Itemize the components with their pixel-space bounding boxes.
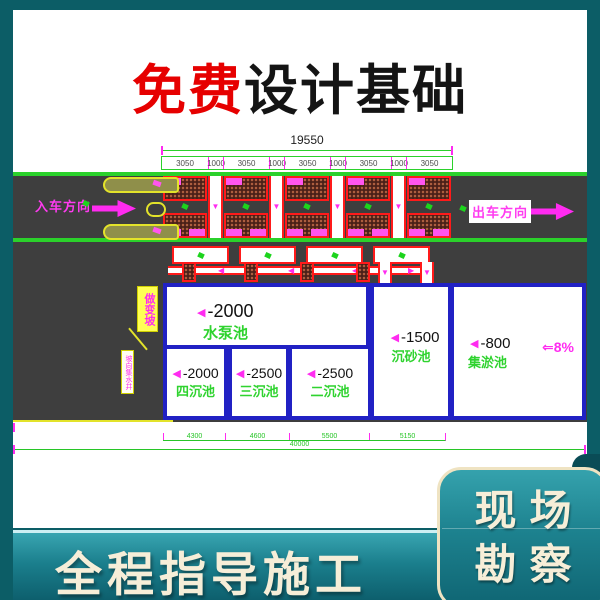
hatched-pier <box>300 262 314 282</box>
flow-down-icon: ▼ <box>395 203 403 211</box>
yellow-baseline <box>13 420 173 422</box>
collection-bay <box>172 246 229 264</box>
traffic-island <box>103 224 179 240</box>
magenta-marker <box>409 178 425 185</box>
magenta-marker <box>250 229 266 236</box>
dimension-value: 1000 <box>391 157 406 169</box>
drain-channel: ▼ <box>269 176 284 238</box>
survey-mark-icon <box>181 203 189 210</box>
tank-third-sedimentation: ◀-2500 三沉池 <box>228 345 290 420</box>
top-total-dimension-line <box>162 150 452 151</box>
magenta-marker <box>226 229 242 236</box>
top-segment-dimensions: 3050 1000 3050 1000 3050 1000 3050 1000 … <box>161 156 453 170</box>
corner-card-line2: 勘察 <box>461 538 584 592</box>
headline-highlight: 免费 <box>132 61 244 121</box>
flow-down-icon: ▼ <box>212 203 220 211</box>
corner-card: 现场 勘察 <box>437 467 600 600</box>
dimension-value: 4300 <box>163 433 225 440</box>
headline: 免费设计基础 <box>0 46 600 125</box>
grate-hatch-bottom <box>224 213 268 238</box>
dimension-tick <box>584 445 586 454</box>
grate-hatch-top <box>407 176 451 201</box>
tank-name: 三沉池 <box>232 381 286 400</box>
exit-direction-label: 出车方向 <box>469 200 531 223</box>
hatched-pier <box>182 262 196 282</box>
survey-mark-icon <box>264 252 272 259</box>
drain-grate-grid: ▼ ▼ ▼ ▼ <box>162 176 452 238</box>
slope-note-strip: 坡向集水井 <box>121 350 134 394</box>
tank-depth: ◀-2000 <box>167 365 224 381</box>
magenta-marker <box>311 229 327 236</box>
grate-hatch-top <box>224 176 268 201</box>
drain-grate-module <box>223 176 269 238</box>
dimension-value: 5500 <box>289 433 369 440</box>
tank-name: 二沉池 <box>292 381 368 400</box>
grate-hatch-bottom <box>407 213 451 238</box>
flow-down-icon: ▼ <box>273 203 281 211</box>
flow-down-icon: ▼ <box>423 269 431 277</box>
tank-depth: ◀-1500 <box>382 329 448 346</box>
survey-mark-icon <box>303 203 311 210</box>
flow-left-icon: ◀ <box>288 267 294 275</box>
magenta-marker <box>372 229 388 236</box>
depth-marker-icon: ◀ <box>307 368 315 380</box>
bottom-total-dimension: 40000 <box>13 441 586 448</box>
downpipe-channel: ▼ <box>378 262 392 284</box>
survey-mark-icon <box>425 203 433 210</box>
dimension-tick <box>13 423 15 432</box>
corner-card-seam <box>442 528 600 529</box>
tank-grit: ◀-1500 沉砂池 <box>370 283 452 420</box>
dimension-value: 3050 <box>345 157 391 169</box>
flow-down-icon: ▼ <box>381 269 389 277</box>
footer-slogan: 全程指导施工 <box>55 536 367 600</box>
drain-channel: ▼ <box>208 176 223 238</box>
hatched-pier <box>244 262 258 282</box>
grate-hatch-bottom <box>346 213 390 238</box>
hatched-pier <box>356 262 370 282</box>
entry-direction-label: 入车方向 <box>35 196 91 215</box>
magenta-marker <box>189 229 205 236</box>
magenta-marker <box>409 229 425 236</box>
magenta-marker <box>152 180 161 187</box>
depth-marker-icon: ◀ <box>470 338 478 350</box>
depth-value: -2500 <box>246 365 282 381</box>
drain-grate-module <box>345 176 391 238</box>
depth-value: -2500 <box>317 365 353 381</box>
flow-down-icon: ▼ <box>334 203 342 211</box>
tank-name: 沉砂池 <box>374 346 448 365</box>
depth-marker-icon: ◀ <box>236 368 244 380</box>
dimension-value: 3050 <box>223 157 269 169</box>
depth-marker-icon: ◀ <box>197 307 205 319</box>
top-total-dimension: 19550 <box>162 133 452 147</box>
depth-value: -800 <box>480 335 510 352</box>
dimension-tick <box>13 445 15 454</box>
magenta-marker <box>348 229 364 236</box>
lane-divider-island <box>146 202 166 217</box>
collection-bay <box>306 246 363 264</box>
survey-mark-icon <box>197 252 205 259</box>
headline-rest: 设计基础 <box>244 61 468 121</box>
depth-value: -2000 <box>183 365 219 381</box>
tank-depth: ◀-2000 <box>197 301 366 322</box>
dimension-value: 3050 <box>284 157 330 169</box>
dimension-tick <box>451 146 453 155</box>
depth-marker-icon: ◀ <box>391 332 399 344</box>
dimension-value: 3050 <box>162 157 208 169</box>
tank-pump: ◀-2000 水泵池 <box>163 283 370 349</box>
tank-name: 水泵池 <box>203 322 366 343</box>
drain-grate-module <box>284 176 330 238</box>
tank-fourth-sedimentation: ◀-2000 四沉池 <box>163 345 228 420</box>
dimension-tick <box>161 146 163 155</box>
survey-mark-icon <box>242 203 250 210</box>
dimension-value: 1000 <box>208 157 223 169</box>
slope-value: 8% <box>554 339 574 355</box>
tank-name: 四沉池 <box>167 381 224 400</box>
slope-note: ⇐8% <box>542 339 574 356</box>
dimension-value: 1000 <box>269 157 284 169</box>
magenta-marker <box>287 229 303 236</box>
grate-hatch-top <box>285 176 329 201</box>
magenta-marker <box>348 178 364 185</box>
dimension-value: 4600 <box>225 433 289 440</box>
downpipe-channel: ▼ <box>420 262 434 284</box>
magenta-marker <box>226 178 242 185</box>
grate-hatch-top <box>346 176 390 201</box>
drain-channel: ▼ <box>391 176 406 238</box>
depth-marker-icon: ◀ <box>172 368 180 380</box>
slope-tag-label: 做变坡 <box>137 286 158 332</box>
bottom-total-dimension-line <box>13 449 586 450</box>
grate-hatch-bottom <box>285 213 329 238</box>
slope-arrow-icon: ⇐ <box>542 339 554 355</box>
magenta-marker <box>433 229 449 236</box>
drain-channel: ▼ <box>330 176 345 238</box>
magenta-marker <box>287 178 303 185</box>
tank-second-sedimentation: ◀-2500 二沉池 <box>288 345 372 420</box>
flow-right-icon: ▶ <box>408 267 414 275</box>
dimension-value: 5150 <box>369 433 445 440</box>
tank-depth: ◀-2500 <box>232 365 286 381</box>
dimension-value: 3050 <box>406 157 452 169</box>
magenta-marker <box>152 227 161 234</box>
flow-left-icon: ◀ <box>218 267 224 275</box>
drain-grate-module <box>406 176 452 238</box>
depth-value: -2000 <box>207 301 253 321</box>
promo-image: 免费设计基础 19550 3050 1000 3050 1000 3050 10… <box>0 0 600 600</box>
depth-value: -1500 <box>401 329 439 346</box>
survey-mark-icon <box>398 252 406 259</box>
survey-mark-icon <box>331 252 339 259</box>
tank-depth: ◀-2500 <box>292 365 368 381</box>
survey-mark-icon <box>364 203 372 210</box>
dimension-value: 1000 <box>330 157 345 169</box>
corner-card-line1: 现场 <box>461 484 584 538</box>
tank-sludge: ◀-800 集淤池 ⇐8% <box>450 283 586 420</box>
traffic-island <box>103 177 179 193</box>
bottom-segment-dimensions: 4300 4600 5500 5150 <box>163 433 446 441</box>
